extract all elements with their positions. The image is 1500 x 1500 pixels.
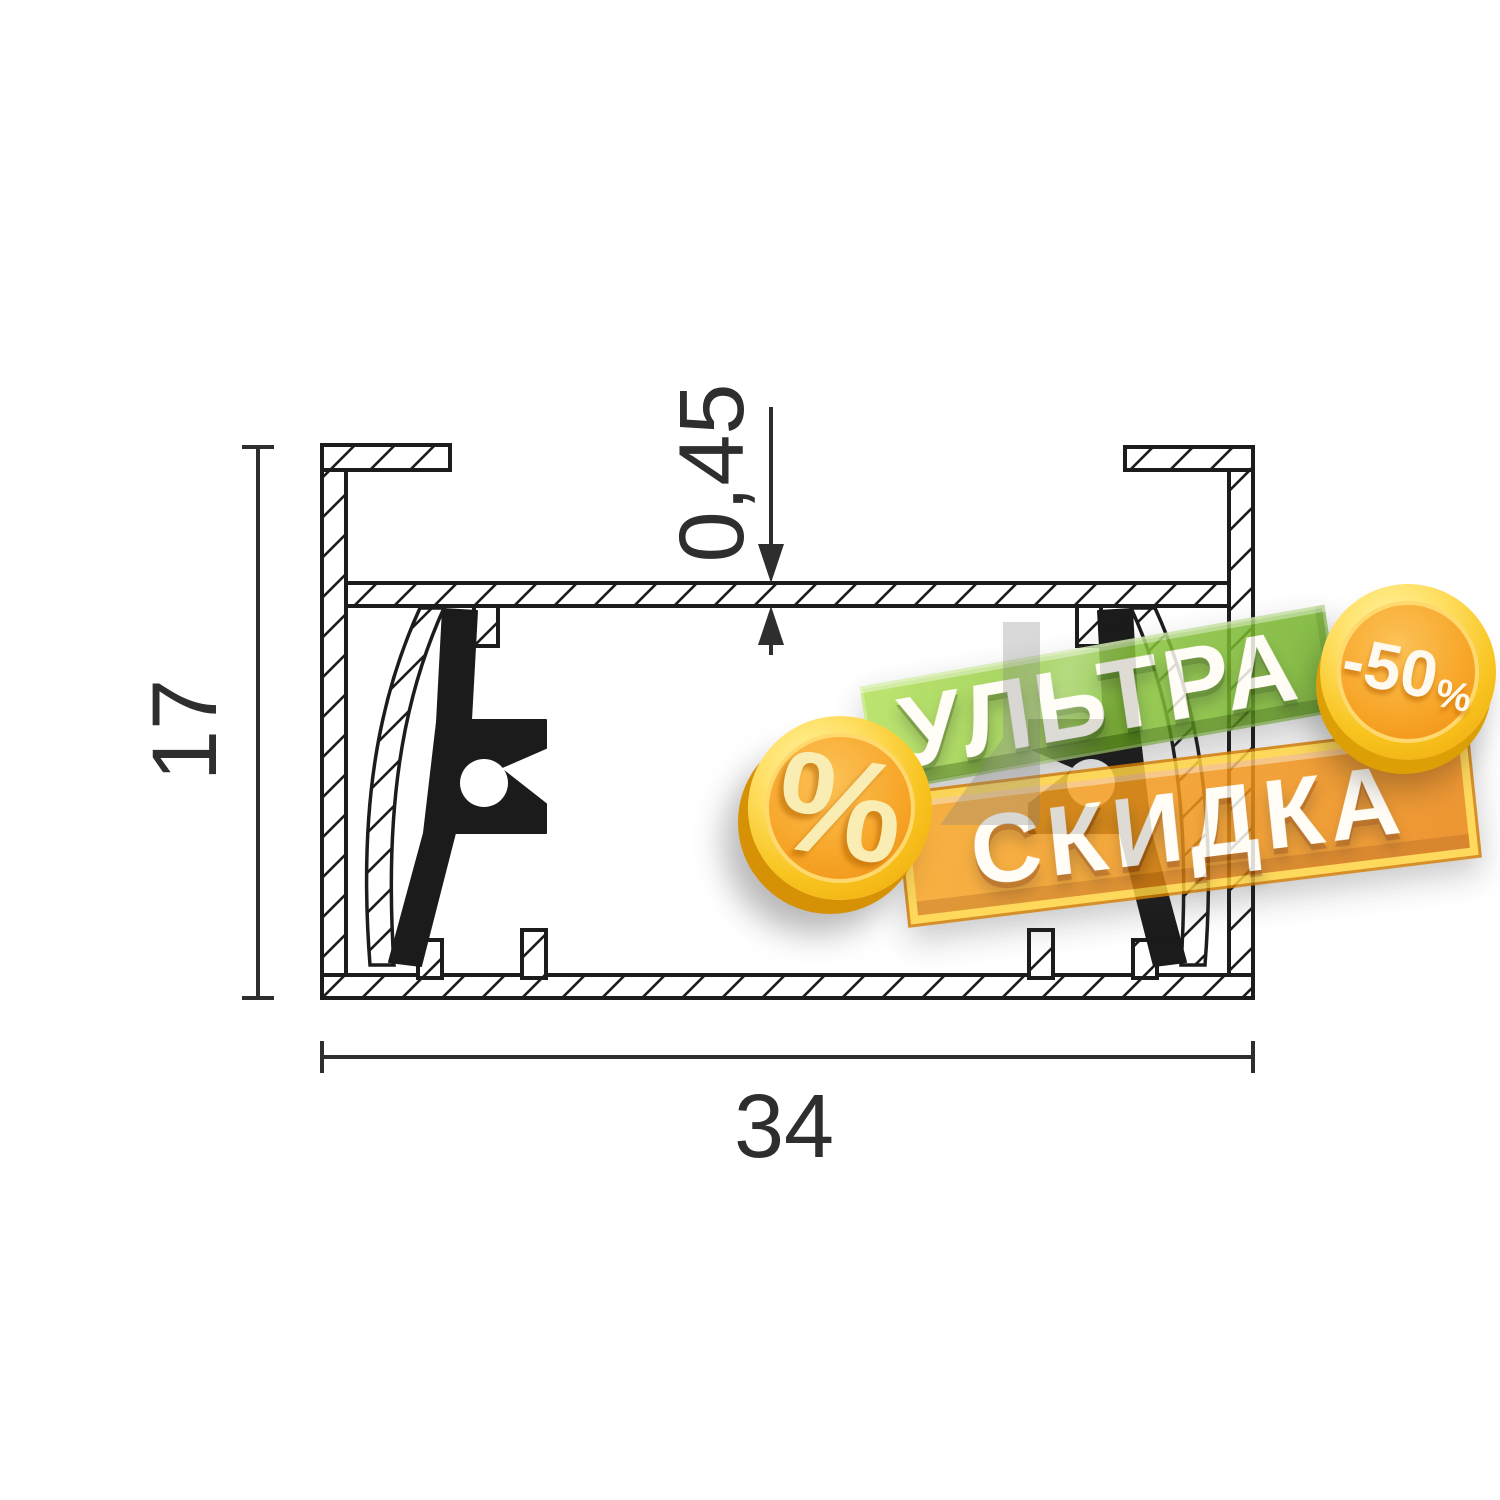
left-gasket-hole <box>460 759 508 807</box>
dim-label-height: 17 <box>134 679 236 781</box>
page: 17 34 0,45 УЛЬТРА СКИДКА % -50% <box>0 0 1500 1500</box>
bottom-wall <box>322 975 1253 998</box>
left-channel-lip-b <box>522 930 546 978</box>
discount-coin-face: -50% <box>1337 601 1479 743</box>
left-wall <box>322 445 346 998</box>
dim-label-width: 34 <box>734 1077 834 1177</box>
top-right-flange <box>1125 447 1253 470</box>
discount-coin: -50% <box>1320 584 1496 760</box>
top-left-flange <box>322 445 450 470</box>
mid-thin-wall <box>346 583 1229 606</box>
discount-percent-suffix: % <box>1431 671 1474 721</box>
dim-label-wall: 0,45 <box>661 383 763 562</box>
right-channel-lip-a <box>1029 930 1053 978</box>
discount-value: -50 <box>1336 622 1444 713</box>
percent-icon: % <box>767 728 914 888</box>
percent-coin-face: % <box>765 733 915 883</box>
discount-coin-label: -50% <box>1336 625 1480 718</box>
percent-coin: % <box>748 716 932 900</box>
